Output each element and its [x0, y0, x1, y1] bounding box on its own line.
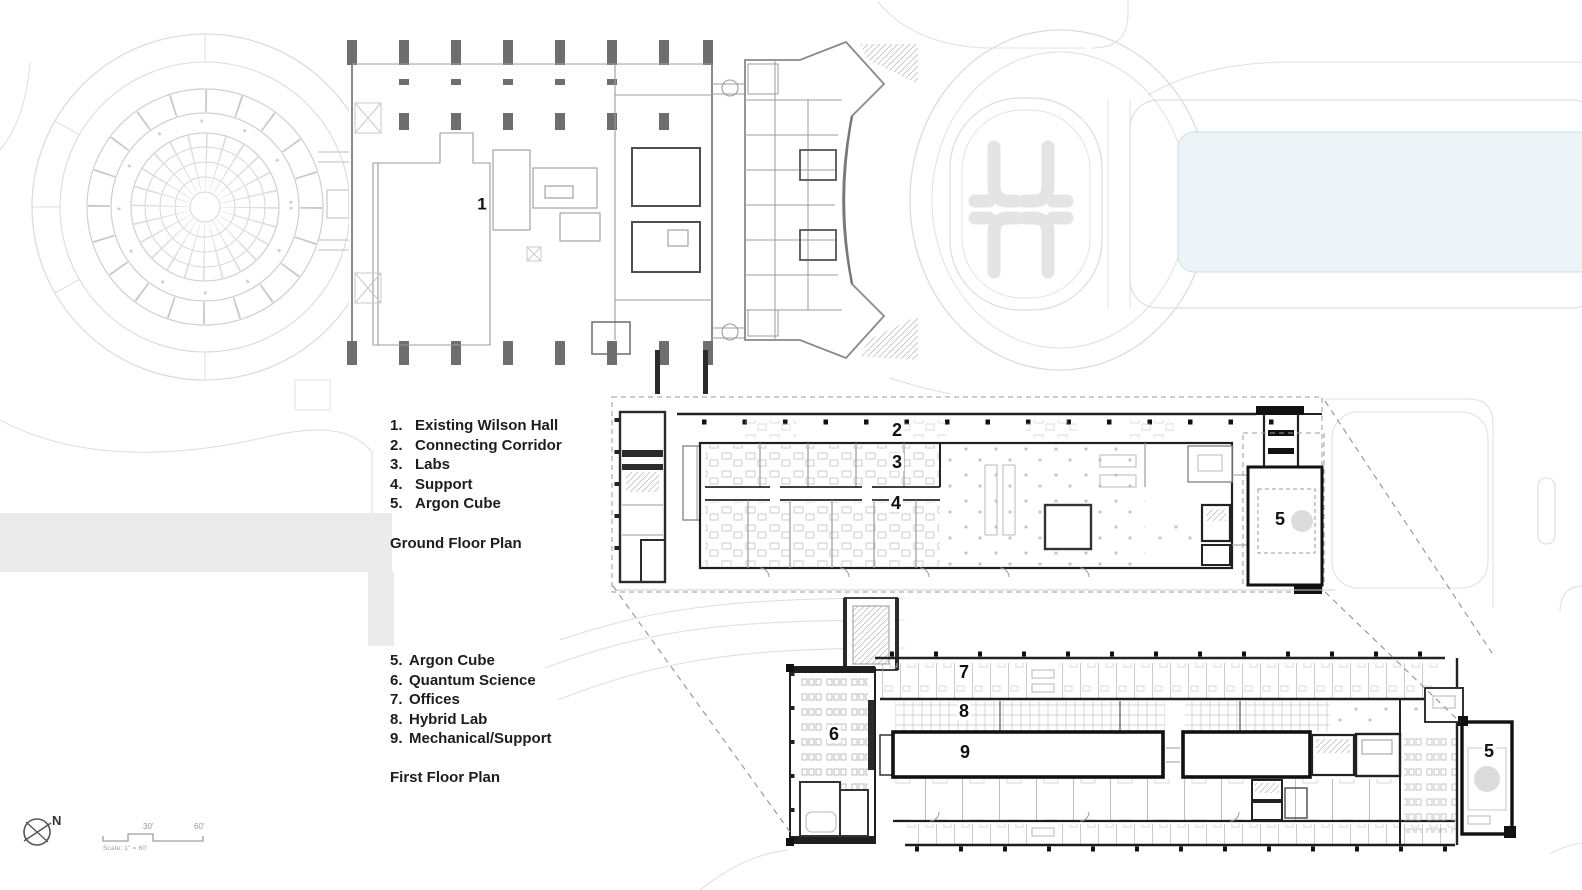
legend-item: 4.Support	[390, 475, 562, 495]
legend-item: 8.Hybrid Lab	[390, 710, 552, 730]
ground-floor-plan-title: Ground Floor Plan	[390, 535, 522, 552]
support-rooms-south	[893, 779, 1455, 821]
scale-end-label: 60'	[194, 822, 204, 831]
legend-item: 3.Labs	[390, 455, 562, 475]
north-arrow-icon	[24, 819, 51, 845]
marker-ground-argon-5: 5	[1273, 510, 1287, 528]
cryostat-circle	[1291, 510, 1313, 532]
floor-plan-sheet: 1.Existing Wilson Hall 2.Connecting Corr…	[0, 0, 1582, 890]
marker-ground-corridor-2: 2	[890, 421, 904, 439]
marker-first-mech-9: 9	[958, 743, 972, 761]
site-plan-drawing	[0, 0, 1582, 890]
marker-first-argon-5: 5	[1482, 742, 1496, 760]
circular-building	[32, 34, 378, 380]
legend-item: 5.Argon Cube	[390, 494, 562, 514]
office-band-south	[905, 824, 1455, 849]
marker-first-quantum-6: 6	[827, 725, 841, 743]
marker-ground-support-4: 4	[889, 494, 903, 512]
legend-ground-floor: 1.Existing Wilson Hall 2.Connecting Corr…	[390, 416, 562, 514]
marker-first-hybrid-8: 8	[957, 702, 971, 720]
wilson-entry-doors	[712, 80, 745, 340]
legend-item: 5.Argon Cube	[390, 651, 552, 671]
quantum-science-hall	[786, 664, 875, 846]
legend-item: 9.Mechanical/Support	[390, 729, 552, 749]
north-label: N	[52, 813, 61, 828]
legend-item: 7.Offices	[390, 690, 552, 710]
curved-wing-plan	[745, 42, 918, 360]
first-floor-plan-title: First Floor Plan	[390, 769, 500, 786]
site-path-bands	[0, 513, 394, 646]
legend-item: 1.Existing Wilson Hall	[390, 416, 562, 436]
legend-item: 2.Connecting Corridor	[390, 436, 562, 456]
marker-first-offices-7: 7	[957, 663, 971, 681]
scale-caption: Scale: 1" = 60'	[103, 845, 148, 852]
legend-first-floor: 5.Argon Cube 6.Quantum Science 7.Offices…	[390, 651, 552, 749]
fermilab-logo-icon	[975, 147, 1067, 272]
commons-area	[942, 445, 1145, 566]
argon-cube-first	[1458, 716, 1516, 838]
marker-wilson-hall-1: 1	[475, 196, 488, 213]
legend-item: 6.Quantum Science	[390, 671, 552, 691]
first-floor-plan-drawing	[786, 596, 1550, 864]
marker-ground-labs-3: 3	[890, 453, 904, 471]
ground-floor-plan-drawing	[610, 394, 1335, 594]
scale-mid-label: 30'	[143, 822, 153, 831]
scale-bar	[103, 834, 203, 841]
wilson-hall-plan	[347, 40, 745, 414]
west-annex	[617, 412, 665, 582]
cryostat-circle	[1474, 766, 1500, 792]
